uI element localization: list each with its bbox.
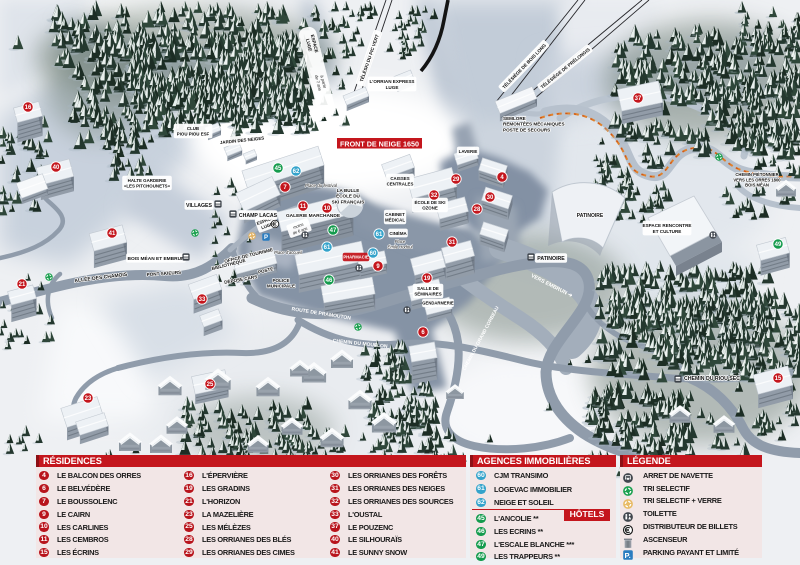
- svg-text:PATINOIRE: PATINOIRE: [537, 256, 565, 262]
- svg-text:Place d'accueil: Place d'accueil: [274, 250, 303, 255]
- svg-text:45: 45: [275, 166, 282, 172]
- svg-text:40: 40: [53, 165, 60, 171]
- svg-text:ÉCOLE DU: ÉCOLE DU: [336, 192, 360, 199]
- svg-text:POLICE: POLICE: [272, 278, 289, 283]
- svg-text:CLUB: CLUB: [187, 126, 199, 131]
- svg-text:10: 10: [324, 206, 331, 212]
- svg-text:GENDARMERIE: GENDARMERIE: [422, 301, 454, 306]
- svg-text:CHEMIN DU RIOU SEC: CHEMIN DU RIOU SEC: [684, 376, 740, 382]
- svg-text:SEMLORE: SEMLORE: [503, 116, 526, 121]
- svg-text:19: 19: [424, 276, 431, 282]
- svg-text:P.: P.: [624, 551, 630, 560]
- svg-text:SÉMINAIRES: SÉMINAIRES: [414, 292, 441, 297]
- svg-text:61: 61: [324, 245, 331, 251]
- svg-text:15: 15: [775, 376, 782, 382]
- svg-text:Place du festival: Place du festival: [305, 183, 338, 188]
- svg-text:CHEMIN PIÉTONNIER: CHEMIN PIÉTONNIER: [735, 172, 778, 177]
- svg-text:37: 37: [635, 96, 642, 102]
- svg-text:29: 29: [453, 177, 460, 183]
- svg-text:32: 32: [431, 193, 438, 199]
- svg-text:CABINET: CABINET: [385, 212, 405, 217]
- svg-text:«LES PITCHOUNETS»: «LES PITCHOUNETS»: [124, 184, 171, 189]
- svg-text:30: 30: [487, 195, 494, 201]
- svg-text:VILLAGES: VILLAGES: [186, 203, 212, 209]
- svg-text:CINÉMA: CINÉMA: [389, 231, 407, 236]
- svg-text:MUNICIPALE: MUNICIPALE: [267, 284, 295, 289]
- svg-text:L'ORRIAN EXPRESS: L'ORRIAN EXPRESS: [370, 79, 415, 84]
- svg-text:CENTRALES: CENTRALES: [387, 182, 414, 187]
- svg-text:REMONTÉES MÉCANIQUES: REMONTÉES MÉCANIQUES: [503, 120, 565, 127]
- svg-text:61: 61: [376, 232, 383, 238]
- svg-text:SALLE DE: SALLE DE: [417, 286, 439, 291]
- svg-text:GALERIE MARCHANDE: GALERIE MARCHANDE: [286, 213, 341, 219]
- svg-text:60: 60: [370, 251, 377, 257]
- svg-text:41: 41: [109, 231, 116, 237]
- svg-text:ÉCOLE DE SKI: ÉCOLE DE SKI: [415, 200, 446, 205]
- svg-text:ET CULTURE: ET CULTURE: [653, 229, 682, 234]
- svg-text:CHAMP LACAS: CHAMP LACAS: [239, 213, 278, 219]
- svg-text:OZONE: OZONE: [422, 206, 438, 211]
- svg-text:ESPACE RENCONTRE: ESPACE RENCONTRE: [643, 223, 692, 228]
- svg-text:49: 49: [775, 242, 782, 248]
- svg-text:16: 16: [25, 105, 32, 111]
- svg-text:BOIS MÉAN: BOIS MÉAN: [745, 183, 769, 188]
- svg-text:PATINOIRE: PATINOIRE: [577, 213, 604, 219]
- svg-text:LA BULLE: LA BULLE: [337, 188, 360, 193]
- svg-text:PIOU PIOU ESF: PIOU PIOU ESF: [177, 132, 210, 137]
- svg-text:28: 28: [474, 207, 481, 213]
- svg-text:MÉDICAL: MÉDICAL: [385, 218, 405, 223]
- svg-text:47: 47: [330, 228, 337, 234]
- svg-text:25: 25: [207, 382, 214, 388]
- svg-text:46: 46: [326, 278, 333, 284]
- svg-text:11: 11: [300, 204, 307, 210]
- svg-text:33: 33: [199, 297, 206, 303]
- svg-text:FRONT DE NEIGE 1650: FRONT DE NEIGE 1650: [340, 139, 419, 148]
- svg-text:VERS LES ORRES 1800: VERS LES ORRES 1800: [733, 177, 781, 182]
- svg-text:LAVERIE: LAVERIE: [459, 149, 478, 154]
- svg-text:Place: Place: [395, 239, 406, 244]
- svg-text:CAISSES: CAISSES: [390, 176, 409, 181]
- svg-text:LUGE: LUGE: [386, 85, 399, 90]
- svg-text:23: 23: [85, 396, 92, 402]
- svg-text:SKI FRANÇAIS: SKI FRANÇAIS: [332, 199, 365, 204]
- svg-text:Émile Hodoul: Émile Hodoul: [388, 244, 414, 249]
- svg-text:HALTE GARDERIE: HALTE GARDERIE: [128, 178, 167, 183]
- svg-text:POSTE DE SECOURS: POSTE DE SECOURS: [503, 127, 550, 132]
- svg-text:PHARMACIE: PHARMACIE: [343, 255, 369, 260]
- svg-text:31: 31: [449, 240, 456, 246]
- svg-text:62: 62: [293, 169, 300, 175]
- svg-text:21: 21: [19, 282, 26, 288]
